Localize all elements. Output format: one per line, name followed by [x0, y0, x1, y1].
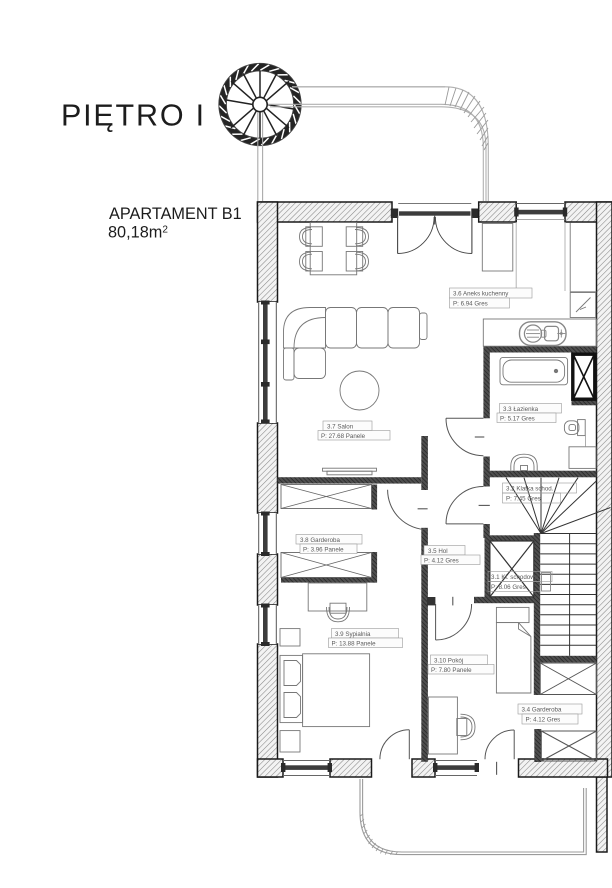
svg-text:3.4 Garderoba: 3.4 Garderoba — [522, 707, 562, 714]
svg-text:3.6 Aneks kuchenny: 3.6 Aneks kuchenny — [453, 291, 509, 298]
svg-text:P: 6.94 Gres: P: 6.94 Gres — [453, 301, 488, 308]
svg-text:P: 13.88 Panele: P: 13.88 Panele — [332, 641, 377, 648]
svg-text:APARTAMENT B1: APARTAMENT B1 — [109, 205, 242, 223]
svg-text:P: 7.80 Panele: P: 7.80 Panele — [431, 667, 472, 674]
svg-text:P: 27.68 Panele: P: 27.68 Panele — [321, 433, 366, 440]
svg-text:P: 3.96 Panele: P: 3.96 Panele — [303, 547, 344, 554]
svg-text:3.3 Łazienka: 3.3 Łazienka — [503, 406, 539, 413]
svg-text:3.10 Pokój: 3.10 Pokój — [434, 658, 463, 665]
svg-text:P: 7.45 Gres: P: 7.45 Gres — [506, 496, 541, 503]
svg-text:P: 4.12 Gres: P: 4.12 Gres — [526, 717, 561, 724]
svg-text:PIĘTRO I: PIĘTRO I — [61, 99, 206, 133]
svg-text:3.9 Sypialnia: 3.9 Sypialnia — [335, 631, 371, 638]
svg-text:3.1 Kl. schodowa: 3.1 Kl. schodowa — [491, 574, 539, 581]
svg-text:P: 8.06 Gres: P: 8.06 Gres — [491, 584, 526, 591]
svg-text:3.7 Salon: 3.7 Salon — [327, 423, 354, 430]
svg-text:80,18m2: 80,18m2 — [108, 224, 168, 242]
svg-text:P: 4.12 Gres: P: 4.12 Gres — [424, 558, 459, 565]
svg-text:3.8 Garderoba: 3.8 Garderoba — [300, 537, 340, 544]
svg-text:3.5 Hol: 3.5 Hol — [428, 548, 448, 555]
svg-text:3.2 Klatka schod.: 3.2 Klatka schod. — [506, 486, 554, 493]
svg-text:P: 5.17 Gres: P: 5.17 Gres — [500, 416, 535, 423]
